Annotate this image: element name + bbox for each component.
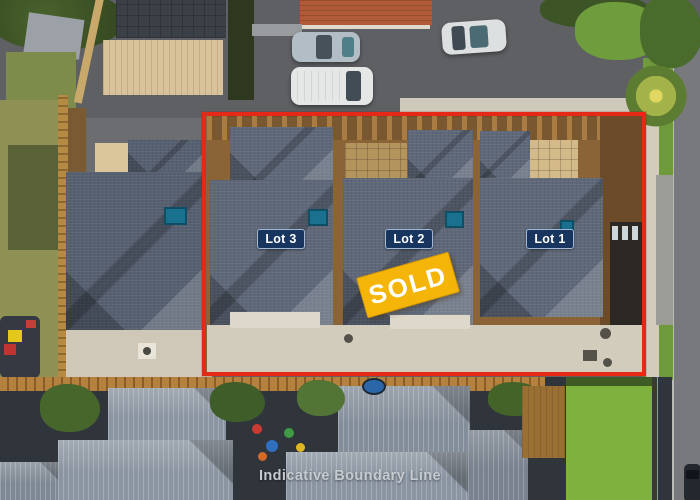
play-item-orange [258,452,267,461]
bottom-roof [108,388,226,442]
aerial-photo: Lot 3 Lot 2 Lot 1 SOLD Indicative Bounda… [0,0,700,500]
boundary-caption: Indicative Boundary Line [0,468,700,484]
garden-bed [8,145,64,250]
suv-windshield [451,26,466,51]
white-van [291,67,373,105]
silver-car [292,32,360,62]
play-item-yellow [296,443,305,452]
red-tarp [4,344,16,355]
parked-trailer [0,316,40,378]
van-roof-ribs [297,71,341,101]
bottom-roof [338,386,470,456]
neighbour-roof [66,172,206,332]
car-windshield [316,35,332,59]
beige-metal-roof [103,40,223,95]
hedge-column [228,0,254,100]
terracotta-roof [300,0,432,26]
bottom-roof [468,430,528,500]
gutter-line [300,25,430,29]
shrub [210,382,265,422]
side-driveway [656,175,673,325]
car-rear-glass [342,37,354,57]
red-item [26,320,36,328]
solar-panel-roof [116,0,226,38]
cedar-building [522,386,570,458]
shrub [40,384,100,432]
yellow-tarp [8,330,22,342]
hedge-line [566,377,652,386]
van-windshield [346,71,361,101]
suv-rear-glass [469,25,488,48]
manhole-pad [138,343,156,359]
trampoline [362,378,386,395]
skylight [164,207,187,225]
lot-label-3: Lot 3 [257,229,305,249]
play-item-red [252,424,262,434]
play-item-blue [266,440,278,452]
lot-label-1: Lot 1 [526,229,574,249]
lot-label-2: Lot 2 [385,229,433,249]
shrub [297,380,345,416]
white-suv [441,19,507,55]
neighbour-roof-wing [128,140,206,176]
play-item-green [284,428,294,438]
manhole-lid [143,347,151,355]
